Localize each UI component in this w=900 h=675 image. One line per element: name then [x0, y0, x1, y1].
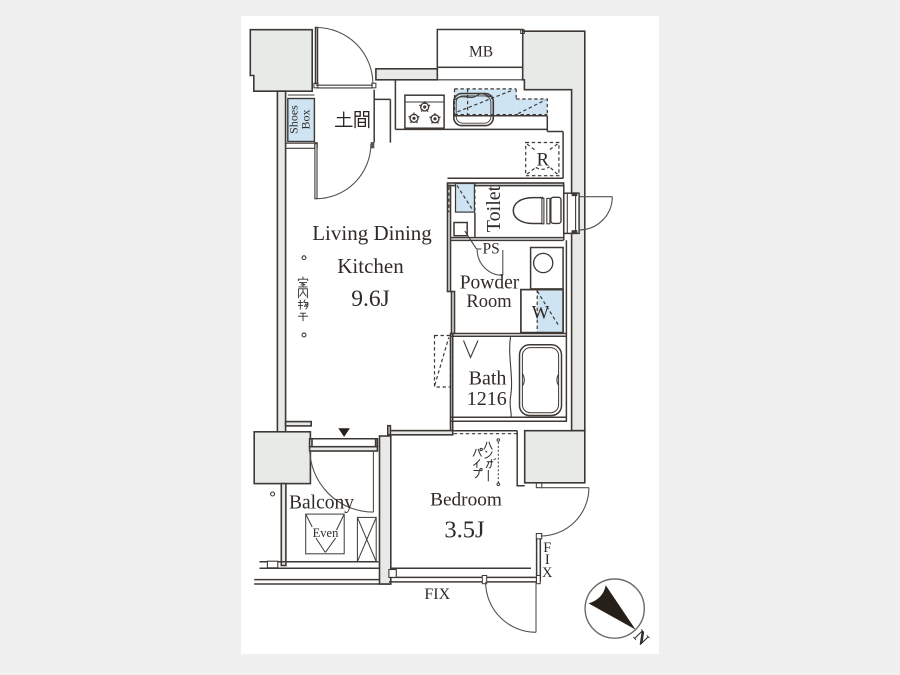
svg-text:Even: Even — [313, 526, 339, 540]
svg-text:Powder: Powder — [460, 273, 520, 294]
svg-text:Box: Box — [299, 109, 313, 129]
svg-text:9.6J: 9.6J — [351, 286, 390, 312]
svg-text:3.5J: 3.5J — [444, 517, 485, 544]
svg-text:Bath: Bath — [469, 368, 507, 390]
svg-text:MB: MB — [469, 44, 493, 61]
svg-text:Living Dining: Living Dining — [312, 221, 432, 245]
svg-text:FIX: FIX — [424, 586, 450, 603]
svg-text:Room: Room — [466, 292, 512, 312]
svg-text:Bedroom: Bedroom — [430, 490, 502, 511]
svg-text:Balcony: Balcony — [289, 493, 354, 514]
svg-text:R: R — [537, 151, 550, 171]
svg-text:Toilet: Toilet — [483, 185, 505, 232]
svg-text:Kitchen: Kitchen — [337, 254, 404, 278]
svg-text:PS: PS — [483, 241, 500, 258]
svg-text:W: W — [532, 304, 550, 324]
svg-text:X: X — [542, 565, 553, 581]
svg-text:1216: 1216 — [467, 388, 507, 410]
